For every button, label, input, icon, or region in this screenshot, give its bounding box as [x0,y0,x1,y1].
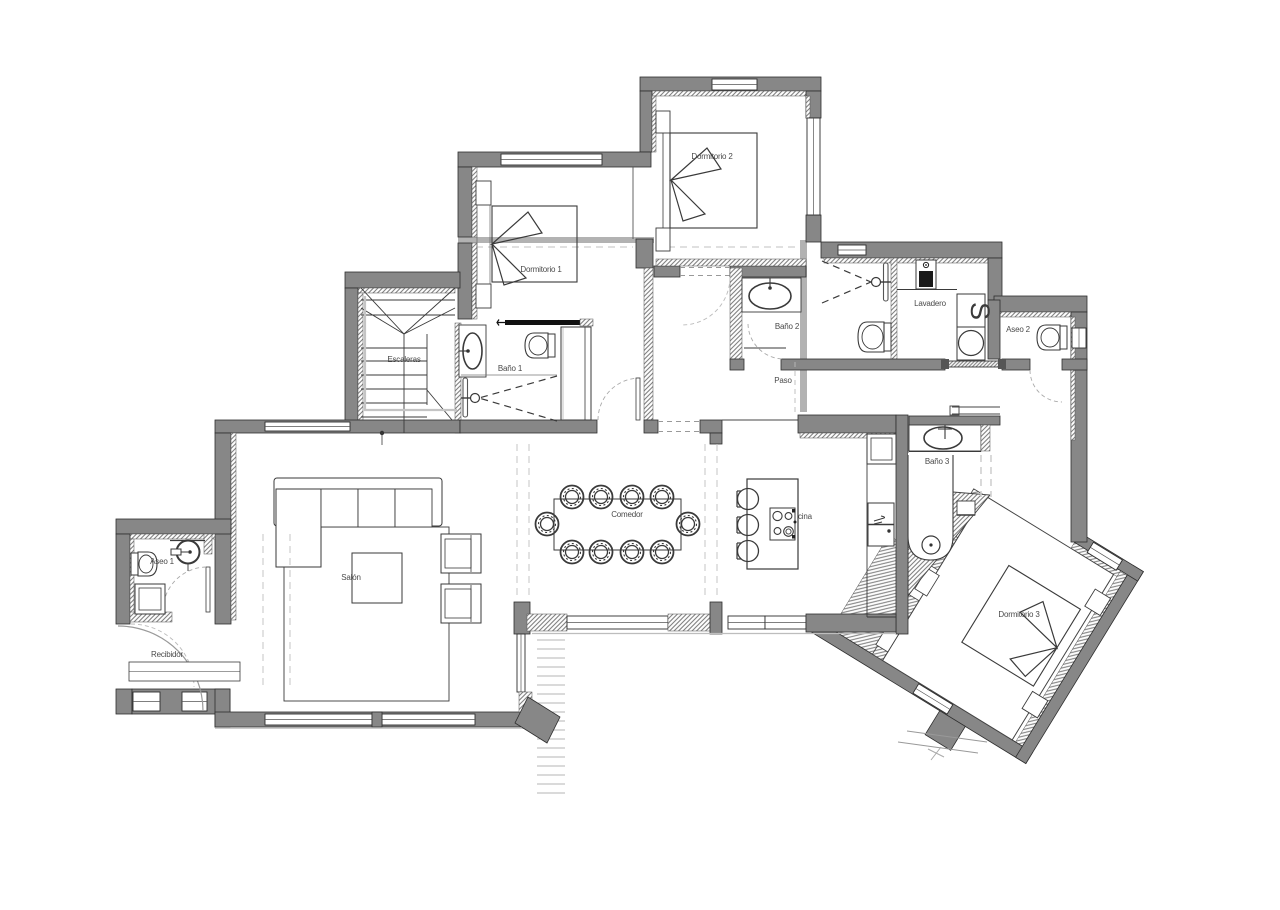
svg-text:Baño 2: Baño 2 [775,322,800,331]
svg-text:Comedor: Comedor [611,510,643,519]
svg-text:Aseo 2: Aseo 2 [1006,325,1030,334]
svg-text:Baño 3: Baño 3 [925,457,950,466]
svg-text:Paso: Paso [774,376,792,385]
svg-text:S: S [965,302,995,320]
svg-text:Escaleras: Escaleras [387,355,421,364]
svg-text:Lavadero: Lavadero [914,299,947,308]
svg-text:Salón: Salón [341,573,360,582]
svg-text:Dormitorio 3: Dormitorio 3 [998,610,1040,619]
svg-text:Baño 1: Baño 1 [498,364,523,373]
svg-text:Dormitorio 2: Dormitorio 2 [691,152,733,161]
svg-text:Dormitorio 1: Dormitorio 1 [520,265,562,274]
svg-text:Recibidor: Recibidor [151,650,184,659]
svg-text:Aseo 1: Aseo 1 [150,557,174,566]
